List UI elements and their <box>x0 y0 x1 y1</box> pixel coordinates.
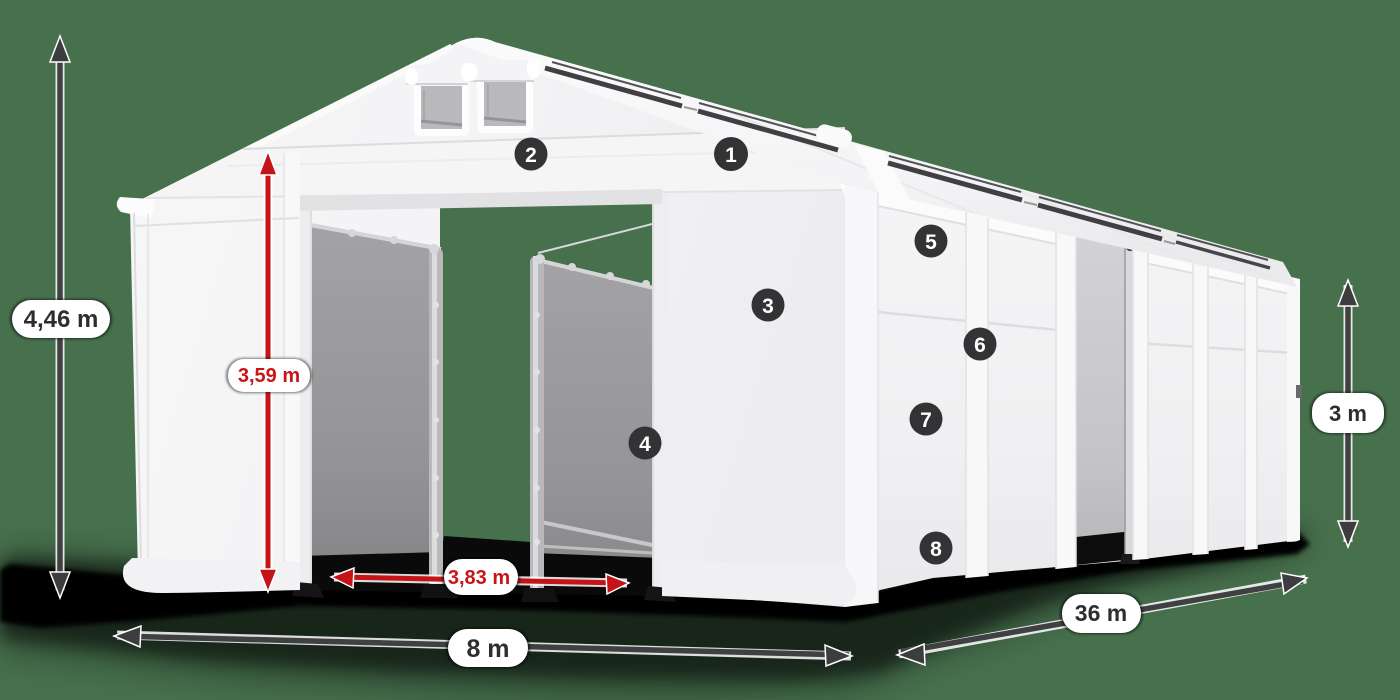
svg-text:1: 1 <box>725 144 737 167</box>
svg-text:5: 5 <box>925 231 937 254</box>
svg-text:3,83 m: 3,83 m <box>448 567 510 589</box>
svg-text:3 m: 3 m <box>1329 401 1367 426</box>
svg-text:7: 7 <box>920 409 932 432</box>
svg-text:3: 3 <box>762 295 774 318</box>
svg-text:8 m: 8 m <box>466 635 509 663</box>
svg-text:3,59 m: 3,59 m <box>238 365 300 387</box>
svg-text:4,46 m: 4,46 m <box>24 306 99 333</box>
svg-text:8: 8 <box>930 538 942 561</box>
svg-text:6: 6 <box>974 334 986 357</box>
svg-text:36 m: 36 m <box>1075 600 1127 626</box>
svg-text:4: 4 <box>639 433 651 456</box>
svg-text:2: 2 <box>525 144 537 167</box>
